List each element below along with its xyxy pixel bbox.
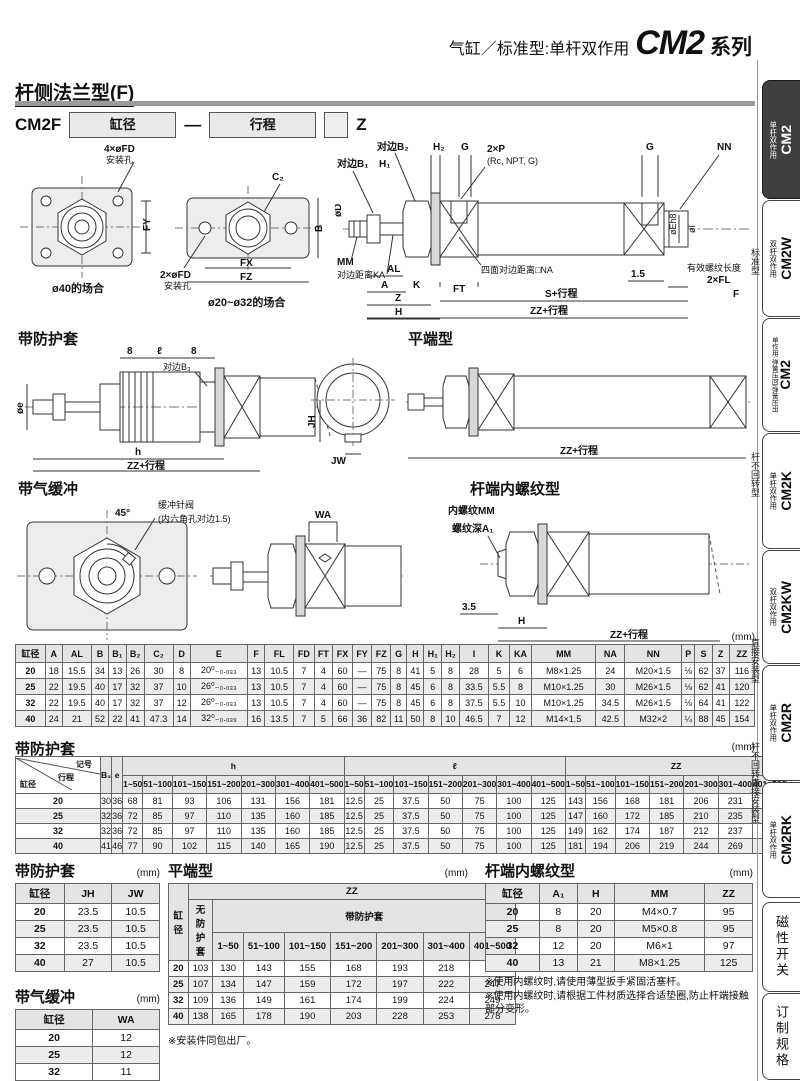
table-cell: 110 [207, 809, 241, 824]
boot-unit: (mm) [15, 742, 755, 753]
table-cell: 18 [45, 663, 62, 679]
tab-custom-text: 订制规格 [772, 1005, 791, 1069]
table-cell: 219 [650, 839, 684, 854]
table-cell: 19.5 [62, 679, 91, 695]
table-cell: 147 [565, 809, 585, 824]
sidebar-tab-cm2kw[interactable]: 双杆双作用 CM2KW [762, 550, 800, 664]
header-cell: 1~50 [123, 775, 143, 794]
header-cell: 101~150 [394, 775, 428, 794]
table-cell: 88 [695, 711, 712, 727]
table-cell: 136 [213, 993, 243, 1009]
table-row: 3211 [16, 1064, 160, 1081]
header-cell: G [391, 645, 407, 663]
tab-cm2w-label: 双杆双作用 [769, 240, 777, 278]
cushion-dim-wa: WA [315, 510, 331, 521]
table-cell: 12 [93, 1030, 160, 1047]
title-rule [15, 101, 755, 106]
table-cell: 206 [615, 839, 649, 854]
table-cell: 66 [333, 711, 353, 727]
table-cell: 172 [615, 809, 649, 824]
stroke-code-box[interactable]: 行程 [209, 112, 316, 138]
dim-zz-stroke: ZZ+行程 [530, 304, 568, 317]
header-cell: S [695, 645, 712, 663]
header-cell: 缸径 [16, 645, 46, 663]
tab-cm2-label: 单杆双作用 [769, 121, 777, 159]
flat-dim-zz: ZZ+行程 [560, 444, 598, 457]
table-cell: M6×1 [614, 938, 704, 955]
table-cell: 172 [331, 977, 377, 993]
boot-dim-zz: ZZ+行程 [127, 459, 165, 472]
header-cell: 101~150 [284, 933, 330, 961]
table-cell: 93 [172, 794, 206, 809]
header-cell: 缸径 [486, 884, 540, 904]
table-cell: 12 [173, 695, 190, 711]
table-cell: 100 [497, 824, 531, 839]
table-cell: 33.5 [459, 679, 488, 695]
table-cell: 30 [101, 794, 112, 809]
female-note-2: ※使用内螺纹时,请根据工件材质选择合适垫圈,防止杆端接触部分变形。 [485, 990, 753, 1017]
dim-2xp-sub: (Rc, NPT, G) [487, 156, 538, 166]
header-cell: K [488, 645, 509, 663]
sidebar-group-nonrotating: 杆不回转型 [747, 452, 759, 497]
dim-1-5: 1.5 [631, 269, 645, 280]
header-cell: 201~300 [684, 775, 718, 794]
table-cell: 237 [718, 824, 752, 839]
model-prefix: CM2F [15, 115, 61, 135]
female-dim-mm: 内螺纹MM [448, 504, 495, 517]
table-cell: 21 [577, 955, 614, 972]
table-cell: 159 [284, 977, 330, 993]
table-cell: 199 [377, 993, 423, 1009]
boot-dim-8a: 8 [127, 346, 133, 357]
table-cell: 20 [16, 904, 65, 921]
table-cell: 26⁰₋₀.₀₃₃ [190, 679, 247, 695]
table-cell: 22 [45, 695, 62, 711]
header-cell: FL [265, 645, 294, 663]
table-cell: 10.5 [265, 663, 294, 679]
header-cell: FX [333, 645, 353, 663]
table-cell: 5 [424, 663, 442, 679]
table-cell: 50 [407, 711, 424, 727]
table-cell: 17 [109, 695, 127, 711]
sidebar-tab-cm2rk[interactable]: 单杆双作用 CM2RK [762, 782, 800, 898]
table-cell: 82 [372, 711, 391, 727]
header-cell: E [190, 645, 247, 663]
table-cell: 40 [91, 679, 108, 695]
table-cell: 193 [377, 961, 423, 977]
header-cell: ZZ [705, 884, 753, 904]
table-cell: 34.5 [596, 695, 625, 711]
table-row: 252219.5401732371026⁰₋₀.₀₃₃1310.57460—75… [16, 679, 755, 695]
dim-fy: FY [142, 218, 153, 231]
boot-dim-jw: JW [331, 456, 347, 467]
table-cell: 21 [62, 711, 91, 727]
header-cell: A₁ [540, 884, 578, 904]
table-cell: 26 [126, 663, 144, 679]
table-cell: 8 [442, 663, 460, 679]
table-cell: 20 [486, 904, 540, 921]
table-cell: 13 [248, 695, 265, 711]
table-cell: 174 [615, 824, 649, 839]
header-cell: MM [531, 645, 596, 663]
table-cell: 12.5 [344, 809, 364, 824]
table-cell: 47.3 [144, 711, 173, 727]
table-cell: 7 [294, 695, 314, 711]
table-cell: 14 [173, 711, 190, 727]
tab-cm2kw-label: 双杆双作用 [769, 588, 777, 626]
header-cell: 缸径 [16, 884, 65, 904]
boot-col-e: e [112, 757, 123, 794]
table-cell: 6 [424, 679, 442, 695]
table-cell: — [352, 695, 372, 711]
table-cell: 165 [213, 1009, 243, 1025]
tab-cm2rk-label: 单杆双作用 [769, 821, 777, 859]
female-header: 缸径A₁HMMZZ [486, 884, 753, 904]
header-cell: F [248, 645, 265, 663]
table-row: 401321M8×1.25125 [486, 955, 753, 972]
table-cell: 135 [241, 809, 275, 824]
flat-unit: (mm) [445, 868, 468, 879]
header-cell: 401~500 [531, 775, 565, 794]
table-cell: 20 [577, 921, 614, 938]
table-cell: 8 [442, 695, 460, 711]
header-cell: 1~50 [565, 775, 585, 794]
table-cell: 203 [331, 1009, 377, 1025]
table-cell: 50 [428, 809, 462, 824]
table-cell: 32 [16, 938, 65, 955]
sidebar-tab-cm2k[interactable]: 单杆双作用 CM2K [762, 433, 800, 549]
table-cell: M10×1.25 [531, 695, 596, 711]
table-cell: 36 [112, 809, 123, 824]
table-cell: 10 [510, 695, 532, 711]
tab-cm2kw-model: CM2KW [778, 581, 794, 634]
table-cell: 168 [331, 961, 377, 977]
table-cell: 190 [310, 839, 344, 854]
tab-cm2rk-model: CM2RK [778, 815, 794, 865]
sidebar-divider [757, 60, 758, 1081]
cushion-needle: 缓冲针阀 [158, 499, 194, 510]
header-cell: AL [62, 645, 91, 663]
table-cell: 155 [284, 961, 330, 977]
dim-oi: øI [687, 225, 697, 233]
table-cell: 32 [486, 938, 540, 955]
header-cell: 51~100 [243, 933, 284, 961]
header-cell: 201~300 [241, 775, 275, 794]
main-cylinder-drawing: 对边B₂ H₂ G 2×P (Rc, NPT, G) G NN 对边B₁ H₁ … [335, 137, 755, 325]
table-cell: 37.5 [394, 794, 428, 809]
dims-unit: (mm) [15, 632, 755, 643]
table-cell: 45 [712, 711, 729, 727]
table-cell: 32 [101, 824, 112, 839]
table-cell: 212 [684, 824, 718, 839]
table-cell: 7 [294, 663, 314, 679]
table-cell: 20⁰₋₀.₀₃₃ [190, 663, 247, 679]
table-cell: 190 [284, 1009, 330, 1025]
table-cell: 131 [241, 794, 275, 809]
header-cell: 151~200 [331, 933, 377, 961]
boot-group-h: h [123, 757, 344, 776]
dim-ft: FT [453, 284, 465, 295]
table-cell: 34 [91, 663, 108, 679]
flat-range-row: 1~5051~100101~150151~200201~300301~40040… [169, 933, 516, 961]
table-cell: 8 [424, 711, 442, 727]
header-cell: NA [596, 645, 625, 663]
header-cell: H [407, 645, 424, 663]
table-cell: 23.5 [64, 938, 112, 955]
header-cell: I [459, 645, 488, 663]
table-cell: M5×0.8 [614, 921, 704, 938]
sidebar-tab-custom[interactable]: 订制规格 [762, 993, 800, 1080]
table-cell: 11 [391, 711, 407, 727]
sidebar-tab-cm2r[interactable]: 单杆双作用 CM2R [762, 665, 800, 781]
header-cell: 301~400 [497, 775, 531, 794]
header-cell: 101~150 [172, 775, 206, 794]
table-cell: 103 [188, 961, 213, 977]
table-cell: — [352, 663, 372, 679]
header-cell: 151~200 [650, 775, 684, 794]
table-cell: 149 [565, 824, 585, 839]
table-cell: 37.5 [459, 695, 488, 711]
svg-text:缸径: 缸径 [19, 779, 36, 789]
female-dim-h: H [518, 616, 525, 627]
female-dim-35: 3.5 [462, 602, 476, 613]
flat-col-zz: ZZ [188, 884, 515, 900]
sidebar-tab-switch[interactable]: 磁性开关 [762, 902, 800, 992]
table-cell: 22 [109, 711, 127, 727]
sidebar-group-directmount: 直接安装型 [747, 638, 759, 683]
female-dim-a1: 螺纹深A₁ [452, 522, 493, 535]
table-cell: 181 [650, 794, 684, 809]
option-code-box[interactable] [324, 112, 348, 138]
header-cell: WA [93, 1010, 160, 1030]
tab-cm2w-model: CM2W [778, 237, 794, 280]
sidebar-tab-cm2[interactable]: 单杆双作用 CM2 [762, 80, 800, 199]
sidebar-group-standard: 标准型 [747, 248, 759, 275]
table-cell: 149 [243, 993, 284, 1009]
table-cell: 62 [695, 663, 712, 679]
table-cell: 210 [684, 809, 718, 824]
table-cell: 40 [16, 711, 46, 727]
dim-2xofd: 2×øFD [160, 270, 191, 281]
svg-text:行程: 行程 [57, 772, 74, 782]
table-cell: 8 [540, 904, 578, 921]
sidebar-tab-cm2w[interactable]: 双杆双作用 CM2W [762, 200, 800, 317]
header-cell: 151~200 [428, 775, 462, 794]
table-cell: 100 [497, 809, 531, 824]
caption-o20-32: ø20~ø32的场合 [208, 295, 286, 309]
table-cell: 10.5 [112, 904, 160, 921]
dim-nn: NN [717, 142, 731, 153]
table-cell: 90 [143, 839, 173, 854]
table-cell: 40 [169, 1009, 189, 1025]
table-cell: 72 [123, 809, 143, 824]
header-cell: 201~300 [462, 775, 496, 794]
header-cell: FD [294, 645, 314, 663]
table-cell: 125 [531, 794, 565, 809]
dim-fz: FZ [240, 272, 252, 283]
table-cell: 10.5 [112, 921, 160, 938]
table-cell: 20 [169, 961, 189, 977]
table-row: 404146779010211514016519012.52537.550751… [16, 839, 787, 854]
table-cell: 25 [364, 839, 394, 854]
table-cell: 27 [64, 955, 112, 972]
boot-corner-cell: 记号 行程 缸径 [16, 757, 101, 794]
table-cell: ¼ [682, 711, 695, 727]
bore-code-box[interactable]: 缸径 [69, 112, 176, 138]
table-row: 32323672859711013516018512.52537.5507510… [16, 824, 787, 839]
table-cell: 12 [510, 711, 532, 727]
table-cell: 100 [497, 839, 531, 854]
boot-dim-jh: JH [307, 415, 318, 428]
table-cell: 10.5 [265, 695, 294, 711]
table-cell: 41 [712, 695, 729, 711]
table-cell: 125 [531, 839, 565, 854]
table-cell: 25 [16, 679, 46, 695]
dim-oe: øEh8 [668, 213, 678, 235]
header-cell: FZ [372, 645, 391, 663]
dim-h2: H₂ [433, 142, 445, 153]
table-row: 40138165178190203228253278 [169, 1009, 516, 1025]
header-cell: 101~150 [615, 775, 649, 794]
table-cell: 168 [615, 794, 649, 809]
table-cell: 24 [45, 711, 62, 727]
table-cell: 181 [565, 839, 585, 854]
dim-na: 四面对边距离□NA [481, 264, 553, 275]
boot-dim-8b: 8 [191, 346, 197, 357]
table-cell: 25 [364, 794, 394, 809]
table-row: 25323672859711013516018512.52537.5507510… [16, 809, 787, 824]
cushion-table: 缸径WA 2012251232114016 [15, 1009, 160, 1081]
female-thread-table: 缸径A₁HMMZZ 20820M4×0.79525820M5×0.8953212… [485, 883, 753, 972]
boot-small-table: 缸径JHJW 2023.510.52523.510.53223.510.5402… [15, 883, 160, 972]
table-cell: 162 [586, 824, 616, 839]
table-cell: 143 [565, 794, 585, 809]
dim-4xofd-sub: 安装孔 [106, 154, 133, 165]
table-cell: 125 [531, 809, 565, 824]
table-cell: 10.5 [112, 938, 160, 955]
flat-table-block: 平端型 (mm) 缸径 ZZ 无防护套 带防护套 1~5051~100101~1… [168, 860, 468, 1049]
dim-2xofd-sub: 安装孔 [164, 280, 191, 291]
table-cell: 72 [123, 824, 143, 839]
main-dimension-table: 缸径AALBB₁B₂C₂DEFFLFDFTFXFYFZGHH₁H₂IKKAMMN… [15, 644, 755, 727]
table-cell: 122 [729, 695, 754, 711]
table-cell: 20 [16, 1030, 93, 1047]
table-cell: M26×1.5 [625, 679, 682, 695]
table-cell: 125 [531, 824, 565, 839]
table-cell: 5.5 [488, 679, 509, 695]
sidebar-tab-cm2-single[interactable]: 单作用·弹簧压回/弹簧压出 CM2 [762, 318, 800, 432]
table-cell: 10.5 [265, 679, 294, 695]
table-cell: 68 [123, 794, 143, 809]
table-cell: 52 [91, 711, 108, 727]
table-cell: 22 [45, 679, 62, 695]
table-cell: 12 [540, 938, 578, 955]
table-cell: 228 [377, 1009, 423, 1025]
flat-end-table: 缸径 ZZ 无防护套 带防护套 1~5051~100101~150151~200… [168, 883, 516, 1025]
table-cell: 37 [144, 695, 173, 711]
table-cell: 36 [352, 711, 372, 727]
dim-h1: H₁ [379, 159, 390, 170]
boot-dimension-table: 记号 行程 缸径 B₃ e h ℓ ZZ 1~5051~100101~15015… [15, 756, 787, 854]
table-cell: 81 [143, 794, 173, 809]
header-cell: Z [712, 645, 729, 663]
header-cell: FY [352, 645, 372, 663]
header-cell: JW [112, 884, 160, 904]
table-cell: 160 [275, 824, 309, 839]
table-cell: 46 [112, 839, 123, 854]
table-cell: 7 [294, 711, 314, 727]
header-cell: 缸径 [16, 1010, 93, 1030]
table-cell: 187 [650, 824, 684, 839]
table-cell: 10 [173, 679, 190, 695]
table-cell: 5 [488, 663, 509, 679]
table-cell: 19.5 [62, 695, 91, 711]
table-cell: 25 [16, 809, 101, 824]
boot-col-b3: B₃ [101, 757, 112, 794]
header-cell: 1~50 [213, 933, 243, 961]
table-cell: 5 [314, 711, 333, 727]
table-cell: 8 [173, 663, 190, 679]
table-cell: 224 [423, 993, 469, 1009]
table-row: 2523.510.5 [16, 921, 160, 938]
table-cell: 12.5 [344, 839, 364, 854]
table-row: 32109136149161174199224249 [169, 993, 516, 1009]
dim-thread-len: 有效螺纹长度 [687, 262, 741, 273]
table-cell: M14×1.5 [531, 711, 596, 727]
table-cell: 160 [586, 809, 616, 824]
table-cell: 85 [143, 824, 173, 839]
table-cell: 41 [101, 839, 112, 854]
table-cell: 37 [712, 663, 729, 679]
table-cell: 194 [586, 839, 616, 854]
table-cell: 107 [188, 977, 213, 993]
table-cell: 253 [423, 1009, 469, 1025]
table-cell: 13 [248, 663, 265, 679]
header-cell: P [682, 645, 695, 663]
table-cell: 41 [712, 679, 729, 695]
table-cell: 7 [488, 711, 509, 727]
table-cell: 102 [172, 839, 206, 854]
dim-al: AL [387, 264, 400, 275]
boot-dim-b3: 对边B₃ [163, 361, 191, 372]
table-cell: 25 [16, 921, 65, 938]
table-cell: 138 [188, 1009, 213, 1025]
table-cell: 26⁰₋₀.₀₃₃ [190, 695, 247, 711]
table-row: 402710.5 [16, 955, 160, 972]
table-cell: 41 [407, 663, 424, 679]
header-cell: 401~500 [310, 775, 344, 794]
table-cell: 37.5 [394, 824, 428, 839]
table-cell: M4×0.7 [614, 904, 704, 921]
table-cell: 62 [695, 679, 712, 695]
table-cell: 269 [718, 839, 752, 854]
dim-2xp: 2×P [487, 144, 505, 155]
table-cell: 36 [112, 824, 123, 839]
header-cell: 151~200 [207, 775, 241, 794]
header-cell: H₁ [424, 645, 442, 663]
table-row: 322219.5401732371226⁰₋₀.₀₃₃1310.57460—75… [16, 695, 755, 711]
cushion-needle-sub: (内六角孔对边1.5) [158, 513, 231, 524]
table-cell: 185 [310, 809, 344, 824]
table-cell: 32⁰₋₀.₀₃₉ [190, 711, 247, 727]
female-unit: (mm) [730, 868, 753, 879]
table-cell: 97 [172, 809, 206, 824]
table-cell: 45 [407, 679, 424, 695]
table-cell: 4 [314, 663, 333, 679]
table-cell: M20×1.5 [625, 663, 682, 679]
tab-cm2k-label: 单杆双作用 [769, 472, 777, 510]
table-cell: 30 [596, 679, 625, 695]
